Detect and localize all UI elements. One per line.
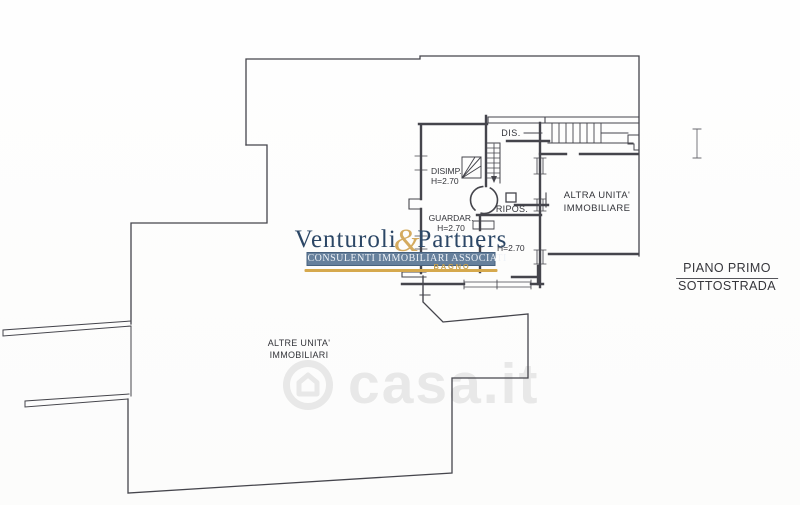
- stair-direction-arrow: [491, 176, 497, 183]
- floor-caption-line1: PIANO PRIMO: [676, 261, 778, 279]
- winder-stairs: [462, 157, 481, 178]
- room-label-dis: DIS.: [501, 128, 521, 138]
- room-label-altre-line2: IMMOBILIARI: [268, 349, 331, 361]
- agency-name-right: Partners: [417, 226, 507, 253]
- floorplan-scan: casa.it: [0, 0, 800, 505]
- floor-caption-line2: SOTTOSTRADA: [676, 279, 778, 295]
- room-label-altra-line1: ALTRA UNITA': [564, 190, 631, 203]
- agency-watermark-gold-rule: [305, 269, 498, 272]
- agency-name-left: Venturoli: [295, 226, 397, 253]
- room-label-disimp: DISIMP. H=2.70: [431, 167, 462, 186]
- interior-stairs: [486, 143, 500, 183]
- floor-caption: PIANO PRIMO SOTTOSTRADA: [676, 261, 778, 294]
- room-label-disimp-height: H=2.70: [431, 177, 462, 187]
- room-label-altra-line2: IMMOBILIARE: [564, 203, 631, 216]
- unit-wall-bottom-left: [402, 272, 430, 302]
- room-label-ripos: RIPOS.: [496, 204, 528, 214]
- room-label-altre-line1: ALTRE UNITA': [268, 337, 331, 349]
- left-wall-slivers: [3, 321, 131, 407]
- room-label-altre-unita: ALTRE UNITA' IMMOBILIARI: [268, 337, 331, 361]
- left-wall-jog: [409, 199, 421, 209]
- outer-walls-bottom: [128, 276, 528, 493]
- room-label-altra-unita: ALTRA UNITA' IMMOBILIARE: [564, 190, 631, 215]
- door-arc: [471, 187, 498, 214]
- neighbour-wall-fragment: [693, 129, 701, 158]
